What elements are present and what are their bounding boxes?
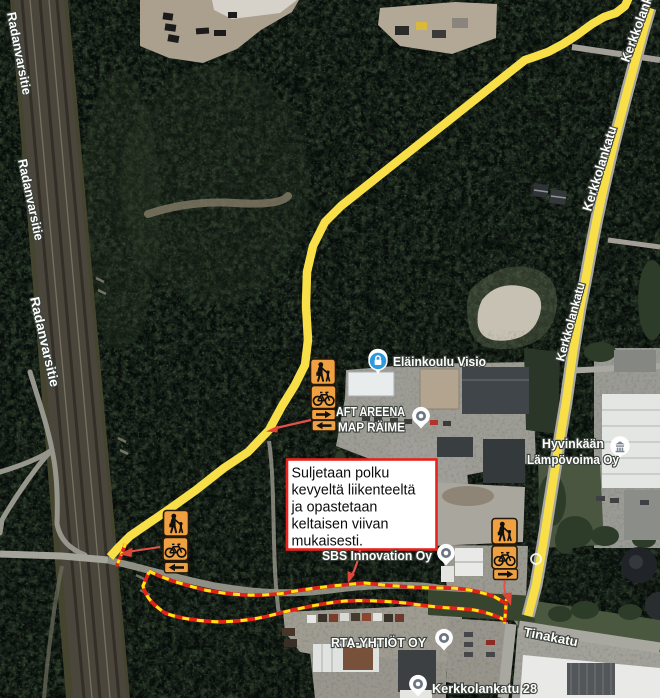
svg-text:RTA-YHTIÖT OY: RTA-YHTIÖT OY bbox=[331, 635, 426, 650]
svg-text:SBS Innovation Oy: SBS Innovation Oy bbox=[322, 548, 433, 563]
svg-text:Kerkkolankatu 28: Kerkkolankatu 28 bbox=[432, 681, 537, 696]
svg-text:Suljetaan polku: Suljetaan polku bbox=[292, 466, 390, 482]
svg-text:Lämpövoima Oy: Lämpövoima Oy bbox=[527, 453, 619, 467]
svg-text:keltaisen viivan: keltaisen viivan bbox=[292, 517, 389, 533]
svg-text:ja opastetaan: ja opastetaan bbox=[291, 500, 378, 516]
svg-text:AFT AREENA: AFT AREENA bbox=[336, 404, 406, 419]
svg-text:Hyvinkään: Hyvinkään bbox=[542, 437, 604, 451]
svg-text:MAP RÄIME: MAP RÄIME bbox=[338, 420, 405, 435]
svg-text:Eläinkoulu Visio: Eläinkoulu Visio bbox=[393, 354, 486, 369]
svg-text:kevyeltä liikenteeltä: kevyeltä liikenteeltä bbox=[292, 483, 416, 499]
